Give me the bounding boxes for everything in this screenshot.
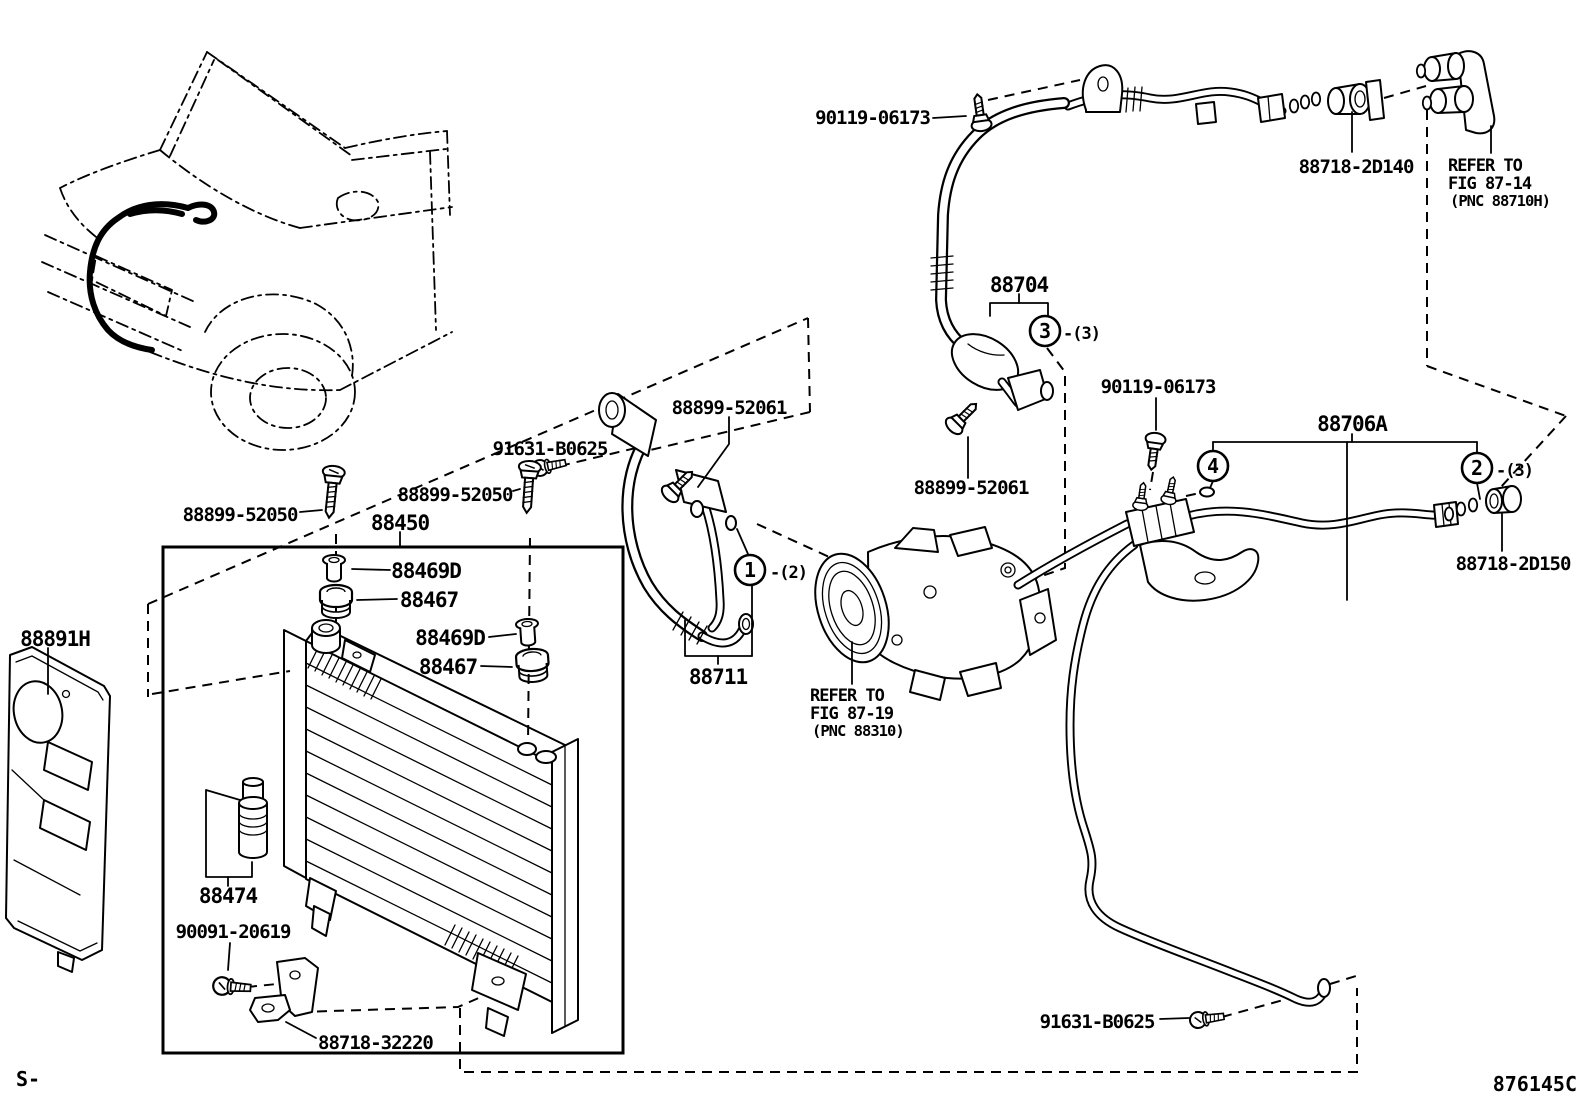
fan-shroud-88891h-drawing (6, 647, 110, 972)
callout-1-qty: -(2) (770, 563, 807, 583)
part-label-88704: 88704 (990, 273, 1049, 297)
part-label-88899-52050-a: 88899-52050 (183, 504, 298, 526)
grommet-88467-b-drawing (516, 648, 550, 683)
pipe-clip (1196, 102, 1216, 124)
bolt-90119-06173-mid-drawing (1141, 432, 1166, 471)
part-label-91631-b0625-a: 91631-B0625 (493, 438, 608, 460)
callout-1: 1 (735, 555, 765, 585)
grommet-88469d-b-drawing (516, 618, 540, 646)
ref-fig-87-19-line2: FIG 87-19 (810, 704, 894, 724)
callout-4-number: 4 (1207, 454, 1219, 478)
footer-prefix: S- (16, 1067, 40, 1091)
part-label-88899-52061-a: 88899-52061 (672, 397, 787, 419)
screw-88899-52050-b-drawing (516, 460, 542, 513)
part-label-88891h: 88891H (20, 627, 90, 651)
pipe-assy-88706a-drawing (1018, 475, 1458, 1002)
callout-2: 2 (1462, 453, 1492, 483)
part-label-88718-2d140: 88718-2D140 (1299, 156, 1414, 178)
part-label-90119-06173-top: 90119-06173 (815, 107, 930, 129)
oring-set-2d150 (1445, 499, 1477, 521)
part-label-90119-06173-mid: 90119-06173 (1101, 376, 1216, 398)
part-label-88711: 88711 (689, 665, 748, 689)
oring-set-top (1290, 93, 1320, 113)
callout-3-qty: -(3) (1063, 324, 1100, 344)
callout-2-qty: -(3) (1496, 461, 1533, 481)
grommet-88467-a-drawing (320, 585, 352, 618)
part-label-88718-32220: 88718-32220 (318, 1032, 433, 1054)
parts-diagram-page: 1 -(2) 2 -(3) 3 -(3) 4 90119-06173 88718… (0, 0, 1592, 1099)
screw-91631-b0625-b-drawing (1189, 1008, 1225, 1029)
part-label-88450: 88450 (371, 511, 430, 535)
part-label-88718-2d150: 88718-2D150 (1456, 553, 1571, 575)
part-label-88467-b: 88467 (419, 655, 478, 679)
part-label-88467-a: 88467 (400, 588, 459, 612)
receiver-drier-88474-drawing (239, 778, 267, 858)
ref-fig-87-14-line2: FIG 87-14 (1448, 174, 1532, 194)
figure-code: 876145C (1493, 1072, 1577, 1096)
part-label-88474: 88474 (199, 884, 258, 908)
compressor-drawing (802, 527, 1056, 700)
grommet-88469d-a-drawing (323, 555, 345, 582)
callout-2-number: 2 (1471, 456, 1483, 480)
callout-3: 3 (1030, 316, 1060, 346)
part-label-88706a: 88706A (1317, 412, 1388, 436)
pipe-bracket (1083, 65, 1122, 112)
highlighted-ac-piping-harness (90, 204, 215, 350)
bolt-88899-52061-b-drawing (943, 397, 983, 437)
part-label-88469d-a: 88469D (391, 559, 461, 583)
part-label-91631-b0625-b: 91631-B0625 (1040, 1011, 1155, 1033)
callout-4: 4 (1198, 451, 1228, 481)
callout-3-number: 3 (1039, 319, 1051, 343)
vehicle-thumbnail-sketch (42, 52, 452, 450)
ref-fig-87-19-line3: (PNC 88310) (812, 722, 904, 740)
pipe-bracket-plate (1140, 541, 1258, 601)
bolt-90091-20619-drawing (213, 977, 252, 997)
fitting-88718-2d140-drawing (1328, 80, 1384, 120)
fitting-88718-2d150-drawing (1486, 486, 1521, 513)
ref-fig-87-14-line1: REFER TO (1448, 156, 1523, 176)
part-label-88899-52061-b: 88899-52061 (914, 477, 1029, 499)
callout-1-number: 1 (744, 558, 756, 582)
part-label-88469d-b: 88469D (415, 626, 485, 650)
ref-fig-87-19-line1: REFER TO (810, 686, 885, 706)
part-label-88899-52050-b: 88899-52050 (398, 484, 513, 506)
pipe-clamp-bracket-drawing (250, 958, 318, 1022)
block-joint (1126, 475, 1194, 546)
ref-fig-87-14-line3: (PNC 88710H) (1450, 192, 1550, 210)
part-label-90091-20619: 90091-20619 (176, 921, 291, 943)
evaporator-union-ports-drawing (1417, 51, 1495, 133)
oring-under-callout4 (1200, 488, 1214, 497)
condenser-fins (306, 663, 552, 983)
